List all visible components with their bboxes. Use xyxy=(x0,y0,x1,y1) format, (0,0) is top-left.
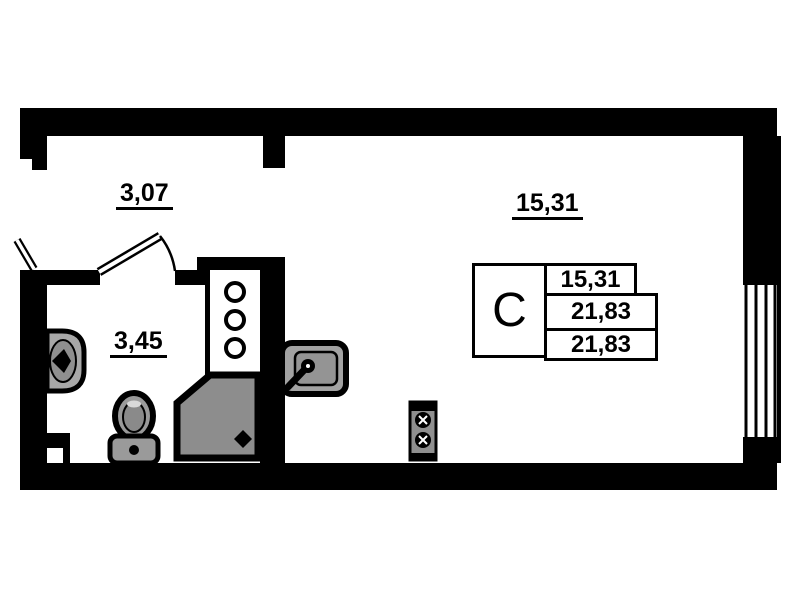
entrance-door-icon xyxy=(17,240,34,269)
stamp-living-value: 15,31 xyxy=(560,266,620,294)
bathroom-door-icon xyxy=(99,236,175,272)
living-area-value: 15,31 xyxy=(516,189,579,217)
stamp-total-value: 21,83 xyxy=(571,298,631,326)
stamp-type-label: С xyxy=(492,283,527,338)
stamp-row-total: 21,83 xyxy=(544,293,658,331)
fixtures-layer xyxy=(0,0,799,600)
ventilation-shaft-icon xyxy=(226,283,244,357)
kitchen-sink-icon xyxy=(282,343,346,394)
stamp-row-living: 15,31 xyxy=(544,263,637,296)
bathroom-area-label: 3,45 xyxy=(110,328,167,358)
shower-icon xyxy=(177,375,258,458)
stove-icon xyxy=(410,402,436,460)
stamp-row-total-with-balcony: 21,83 xyxy=(544,328,658,361)
window-icon xyxy=(746,285,775,437)
living-area-label: 15,31 xyxy=(512,190,583,220)
stamp-total2-value: 21,83 xyxy=(571,331,631,359)
bathroom-area-value: 3,45 xyxy=(114,327,163,355)
hallway-area-label: 3,07 xyxy=(116,180,173,210)
floor-plan: 3,07 3,45 15,31 С 15,31 21,83 21,83 xyxy=(0,0,799,600)
stamp-type-cell: С xyxy=(472,263,547,358)
toilet-icon xyxy=(110,393,158,463)
hallway-area-value: 3,07 xyxy=(120,179,169,207)
washbasin-icon xyxy=(47,331,84,391)
